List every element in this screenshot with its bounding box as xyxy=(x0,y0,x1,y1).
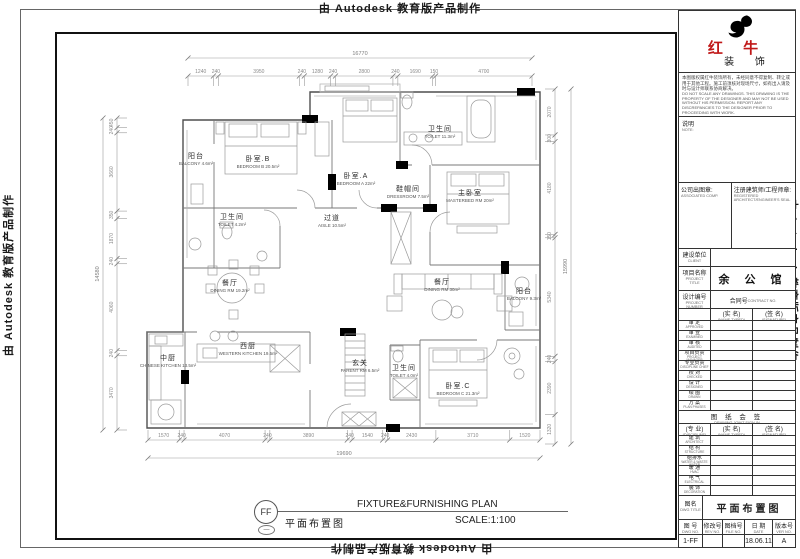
dimension-label: 1280 xyxy=(312,69,323,75)
room-label: 卫生间TOILET 4.2m² xyxy=(218,214,246,228)
title-block: 红 牛 装 饰 本图版权属红牛装饰所有，未经同意不得复制、转让或用于其他工程。施… xyxy=(678,10,796,548)
dimension-label: 300 xyxy=(547,134,553,143)
dimension-label: 240 xyxy=(109,126,115,135)
autodesk-banner-bottom: 由 Autodesk 教育版产品制作 xyxy=(330,541,492,557)
drawing-sheet: 由 Autodesk 教育版产品制作 由 Autodesk 教育版产品制作 由 … xyxy=(0,0,800,559)
sign-row: 审 定APPROVED xyxy=(679,321,795,331)
caption-scale: SCALE:1:100 xyxy=(455,515,516,526)
outer-walls xyxy=(147,92,540,428)
company-seal: 公司出图章:ASSOCIATED COMP. xyxy=(679,183,732,248)
room-label: 鞋帽间DRESSROOM 7.5m² xyxy=(387,186,429,200)
discipline-row: 装 饰DECORATION xyxy=(679,486,795,496)
dimension-label: 3470 xyxy=(109,387,115,398)
sign-row: 设 计DESIGNED xyxy=(679,381,795,391)
dimension-label: 3710 xyxy=(467,433,478,439)
room-label: 餐厅DINING RM 30m² xyxy=(424,279,460,293)
dimension-label: 1870 xyxy=(109,233,115,244)
ff-symbol: FF xyxy=(254,500,278,524)
room-label: 阳台BALCONY 4.6m² xyxy=(179,153,213,167)
ff-symbol-sub: — xyxy=(258,525,275,535)
dimension-label: 2430 xyxy=(406,433,417,439)
sheet-date: 18.06.11 xyxy=(745,535,773,547)
dimension-label: 4070 xyxy=(219,433,230,439)
disclaimer: 本图版权属红牛装饰所有，未经同意不得复制、转让或用于其他工程。施工前须核对现场尺… xyxy=(679,73,795,117)
dimension-label: 1240 xyxy=(195,69,206,75)
project-title-row: 项目名称PROJECT TITLE 余 公 馆 xyxy=(679,267,795,291)
dimension-label: 1540 xyxy=(362,433,373,439)
drawing-title-value: 平面布置图 xyxy=(703,496,795,519)
caption-title-en: FIXTURE&FURNISHING PLAN xyxy=(357,499,498,510)
dimension-label: 1690 xyxy=(410,69,421,75)
note-section: 说明 NOTE: xyxy=(679,117,795,183)
dimension-label: 1570 xyxy=(158,433,169,439)
dimension-label: 240 xyxy=(298,69,307,75)
design-number-row: 设计编号PROJECT NUMBER 合同号CONTRACT NO. xyxy=(679,291,795,309)
dimension-label: 2800 xyxy=(359,69,370,75)
room-label: 卫生间TOILET 4.0m² xyxy=(390,365,418,379)
sign-row: 校 对CHECKED xyxy=(679,371,795,381)
sign-row: 专业负责DISCIPLINE CHIEF xyxy=(679,361,795,371)
drawing-title-row: 图名DWG TITLE 平面布置图 xyxy=(679,496,795,520)
dimension-label: 240 xyxy=(109,257,115,266)
discipline-row: 暖 通HVAC xyxy=(679,466,795,476)
room-label: 卧室.BBEDROOM B 20.5m² xyxy=(237,156,280,170)
room-label: 中厨CHINESE KITCHEN 13.5m² xyxy=(140,355,196,369)
floor-plan: 1240240395024012802402800240169015047001… xyxy=(57,34,671,534)
sign-row: 绘 图DRAWN xyxy=(679,391,795,401)
room-label: 主卧室MASTERBED RM 20m² xyxy=(446,190,494,204)
discipline-row: 建 筑ARCHITECT xyxy=(679,436,795,446)
room-label: 餐厅DINING RM 19.2m² xyxy=(210,280,249,294)
client-row: 建设单位CLIENT xyxy=(679,249,795,267)
dimension-lines: 1240240395024012802402800240169015047001… xyxy=(95,51,574,461)
dimension-label: 240 xyxy=(329,69,338,75)
dimension-label: 4060 xyxy=(109,301,115,312)
sign-row: 审 查EXAMINED xyxy=(679,331,795,341)
discipline-row: 结 构STRUCTURE xyxy=(679,446,795,456)
sign-row: 项目负责PROJECT MANAGER xyxy=(679,351,795,361)
room-label: 玄关PARENT RM 6.5m² xyxy=(341,360,380,374)
autodesk-banner-left: 由 Autodesk 教育版产品制作 xyxy=(0,194,16,356)
project-name: 余 公 馆 xyxy=(711,267,795,290)
dimension-label: 3950 xyxy=(253,69,264,75)
dimension-label: 240 xyxy=(547,355,553,364)
sheet-info: 图 号DWG NO. 修改号REV NO. 图档号FILE NO. 日 期DAT… xyxy=(679,520,795,547)
dimension-label: 3660 xyxy=(109,166,115,177)
dimension-label: 240 xyxy=(109,349,115,358)
room-label: 过道AISLE 10.5m² xyxy=(318,215,346,229)
room-label: 卧室.CBEDROOM C 21.3m² xyxy=(436,383,479,397)
dimension-label: 150 xyxy=(430,69,439,75)
caption-rule xyxy=(278,511,568,512)
seal-section: 公司出图章:ASSOCIATED COMP. 注册建筑师/工程师章:REGIST… xyxy=(679,183,795,249)
partition-walls xyxy=(147,92,540,428)
room-label: 卧室.ABEDROOM A 22m² xyxy=(337,173,376,187)
dimension-label: 350 xyxy=(109,210,115,219)
dimension-label: 2390 xyxy=(547,382,553,393)
caption-title-cn: 平面布置图 xyxy=(285,515,345,530)
dimension-label: 5340 xyxy=(547,291,553,302)
room-label: 西厨WESTERN KITCHEN 19.5m² xyxy=(219,343,278,357)
drawing-frame: 1240240395024012802402800240169015047001… xyxy=(55,32,677,540)
dimension-label: 150 xyxy=(547,232,553,241)
room-label: 阳台BALCONY 9.3m² xyxy=(507,288,541,302)
dimension-label: 4180 xyxy=(547,182,553,193)
sheet-version: A xyxy=(773,535,795,547)
dimension-label: 4700 xyxy=(478,69,489,75)
dimension-label: 240 xyxy=(177,433,186,439)
dimension-label: 240 xyxy=(381,433,390,439)
discipline-header: (专 业)(DISCIPLINE) (实 名)(NAME TYPED) (签 名… xyxy=(679,424,795,436)
dimension-label: 240 xyxy=(346,433,355,439)
dimension-label: 2070 xyxy=(547,106,553,117)
sheet-number: 1-FF xyxy=(679,535,703,547)
engineer-seal: 注册建筑师/工程师章:REGISTERED ARCHITECT/ENGINEER… xyxy=(732,183,795,248)
dimension-label: 240 xyxy=(263,433,272,439)
logo-section: 红 牛 装 饰 xyxy=(679,11,795,73)
dimension-label: 15990 xyxy=(563,259,569,274)
bull-logo-icon xyxy=(720,13,754,39)
dimension-label: 3890 xyxy=(303,433,314,439)
joint-sign-header: 图 纸 会 签DRAWING JOINT SIGN-IN xyxy=(679,411,795,424)
sign-row: 方 案PLAN PHASES xyxy=(679,401,795,411)
signature-header: (实 名)(NAME TYPED) (签 名)(SIGNATURE) xyxy=(679,309,795,321)
dimension-label: 1520 xyxy=(519,433,530,439)
discipline-row: 电 气ELECTRICAL xyxy=(679,476,795,486)
brand-subname: 装 饰 xyxy=(679,57,795,68)
sign-row: 审 核AUDITED xyxy=(679,341,795,351)
dimension-label: 16770 xyxy=(352,51,367,57)
dimension-label: 240 xyxy=(212,69,221,75)
dimension-label: 19690 xyxy=(336,451,351,457)
furniture xyxy=(149,86,529,426)
brand-name: 红 牛 xyxy=(679,41,795,57)
dimension-label: 240 xyxy=(391,69,400,75)
dimension-label: 450 xyxy=(109,118,115,127)
dimension-label: 1320 xyxy=(547,424,553,435)
room-label: 卫生间TOILET 11.3m² xyxy=(425,126,456,140)
discipline-row: 给排水WATER & WASTE WATER xyxy=(679,456,795,466)
dimension-label: 14580 xyxy=(95,266,101,281)
